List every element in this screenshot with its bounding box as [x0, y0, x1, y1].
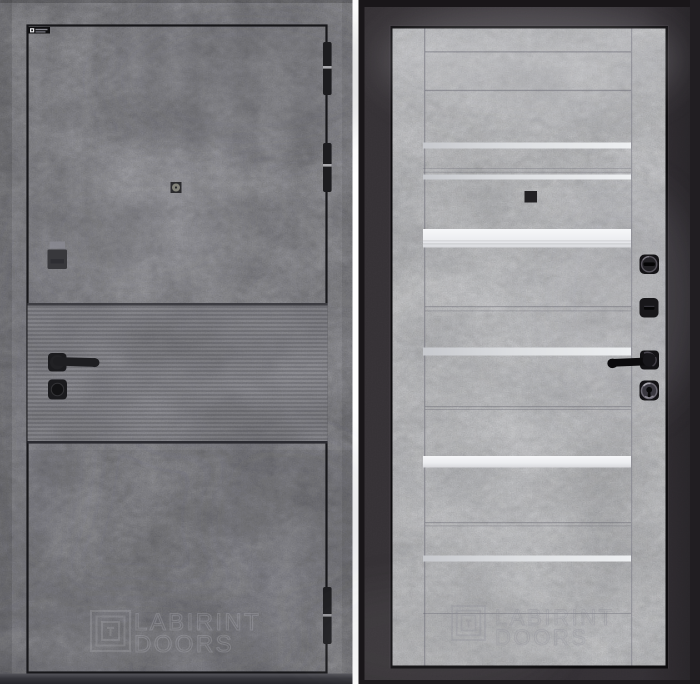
- svg-text:DOORS: DOORS: [495, 625, 589, 650]
- svg-text:DOORS: DOORS: [134, 631, 234, 658]
